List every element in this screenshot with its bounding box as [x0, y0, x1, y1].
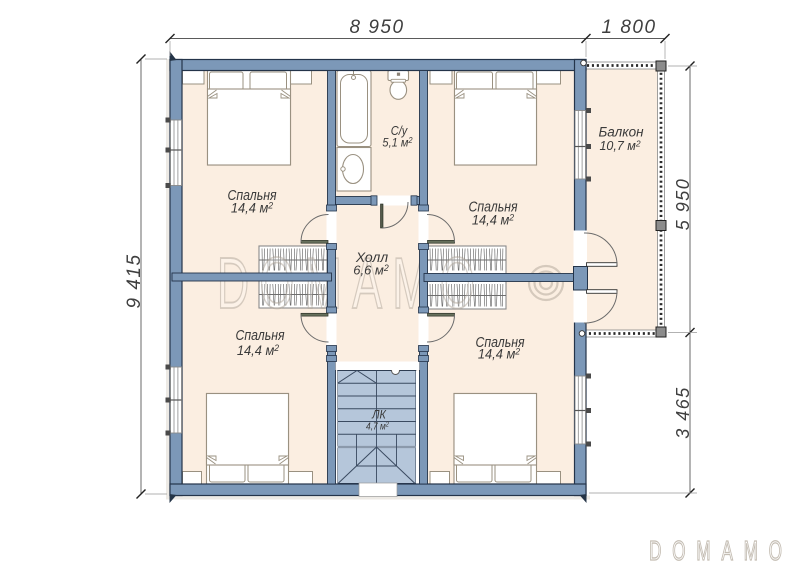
- svg-text:6,6 м2: 6,6 м2: [353, 263, 389, 278]
- svg-text:С/у: С/у: [391, 124, 409, 138]
- svg-text:5 950: 5 950: [673, 178, 693, 231]
- svg-text:10,7 м2: 10,7 м2: [599, 139, 640, 154]
- svg-text:1 800: 1 800: [601, 17, 656, 38]
- svg-text:8 950: 8 950: [349, 17, 404, 38]
- svg-text:Спальня: Спальня: [235, 327, 285, 343]
- svg-text:3 465: 3 465: [673, 386, 693, 439]
- svg-text:14,4 м2: 14,4 м2: [237, 343, 279, 359]
- svg-text:14,4 м2: 14,4 м2: [478, 346, 520, 362]
- svg-text:DOMAMO: DOMAMO: [217, 243, 485, 324]
- svg-text:14,4 м2: 14,4 м2: [231, 200, 273, 216]
- svg-text:Балкон: Балкон: [598, 125, 644, 140]
- svg-text:9 415: 9 415: [124, 253, 145, 308]
- svg-text:14,4 м2: 14,4 м2: [472, 212, 514, 228]
- svg-text:DOMAMO: DOMAMO: [649, 535, 793, 566]
